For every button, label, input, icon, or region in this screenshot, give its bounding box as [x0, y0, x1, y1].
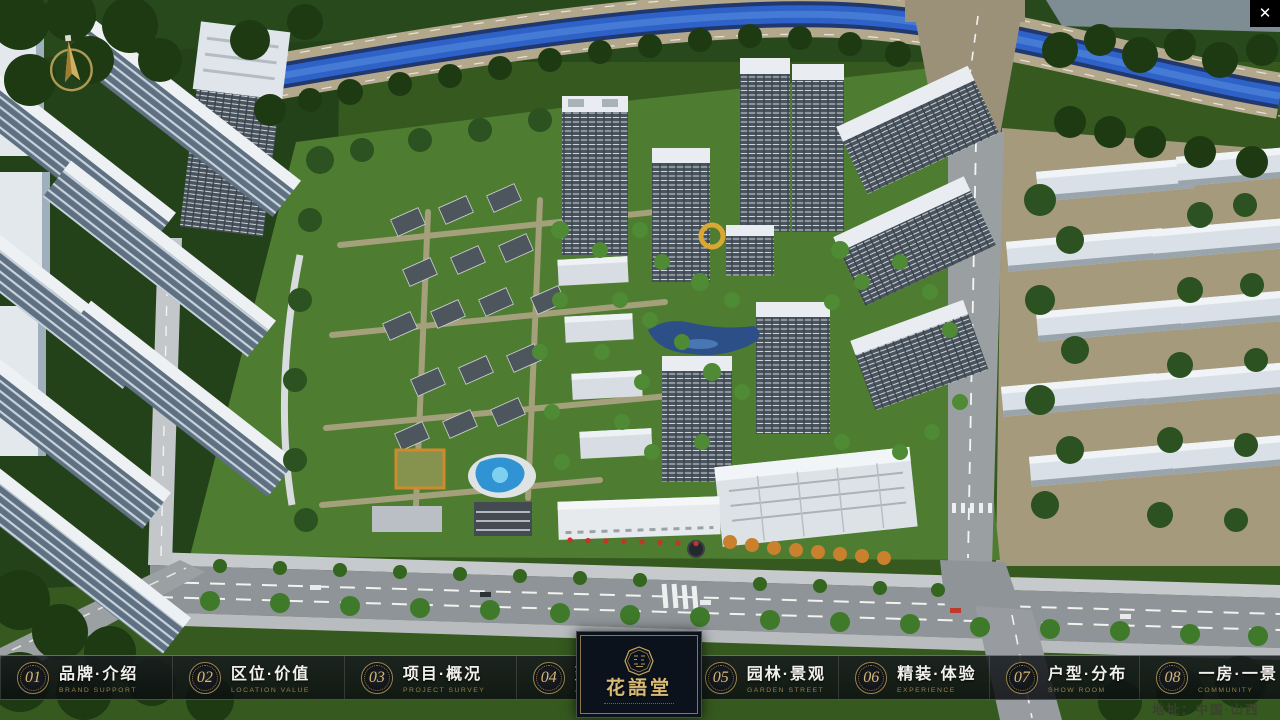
nav-label-en: LOCATION VALUE [231, 686, 308, 693]
nav-label-zh: 一房·一景 [1198, 660, 1279, 684]
nav-item-floorplan-distribution[interactable]: 07 户型·分布SHOW ROOM [989, 656, 1140, 699]
nav-item-room-scenery[interactable]: 08 一房·一景COMMUNITY [1139, 656, 1280, 699]
nav-number-badge: 07 [1006, 662, 1038, 694]
nav-item-brand-intro[interactable]: 01 品牌·介绍BRAND SUPPORT [0, 656, 172, 699]
nav-label-en: SHOW ROOM [1048, 686, 1106, 693]
logo-title: 花語堂 [606, 679, 672, 698]
close-icon: ✕ [1259, 6, 1272, 21]
nav-number-badge: 08 [1156, 662, 1188, 694]
nav-item-garden-landscape[interactable]: 05 园林·景观GARDEN STREET [688, 656, 839, 699]
nav-label-zh: 项目·概况 [403, 660, 516, 684]
nav-item-interior-experience[interactable]: 06 精装·体验EXPERIENCE [838, 656, 989, 699]
nav-group-right: 05 园林·景观GARDEN STREET 06 精装·体验EXPERIENCE… [688, 656, 1280, 699]
nav-label-zh: 品牌·介绍 [59, 660, 172, 684]
nav-label-zh: 园林·景观 [747, 660, 839, 684]
compass-icon [39, 31, 103, 101]
logo-caption [604, 703, 674, 704]
nav-label-en: GARDEN STREET [747, 686, 809, 693]
nav-number-badge: 01 [17, 662, 49, 694]
project-address: 地址：中国·山西 [1152, 699, 1260, 718]
masterplan-render [0, 0, 1280, 720]
nav-label-zh: 精装·体验 [897, 660, 983, 684]
nav-item-project-overview[interactable]: 03 项目·概况PROJECT SURVEY [344, 656, 516, 699]
logo-panel[interactable]: 花語堂 [576, 631, 702, 718]
nav-number-badge: 05 [705, 662, 737, 694]
nav-number-badge: 04 [533, 662, 565, 694]
nav-label-zh: 户型·分布 [1048, 660, 1133, 684]
close-button[interactable]: ✕ [1250, 0, 1280, 27]
nav-number-badge: 02 [189, 662, 221, 694]
nav-number-badge: 06 [855, 662, 887, 694]
nav-item-location-value[interactable]: 02 区位·价值LOCATION VALUE [172, 656, 344, 699]
nav-label-en: COMMUNITY [1198, 686, 1253, 693]
nav-label-zh: 区位·价值 [231, 660, 344, 684]
seal-icon [624, 646, 654, 676]
nav-label-en: PROJECT SURVEY [403, 686, 480, 693]
nav-number-badge: 03 [361, 662, 393, 694]
app-window: ✕ 01 品牌·介绍BRAND SUPPORT 02 区位·价值LOCATION… [0, 0, 1280, 720]
nav-label-en: EXPERIENCE [897, 686, 956, 693]
nav-label-en: BRAND SUPPORT [59, 686, 136, 693]
